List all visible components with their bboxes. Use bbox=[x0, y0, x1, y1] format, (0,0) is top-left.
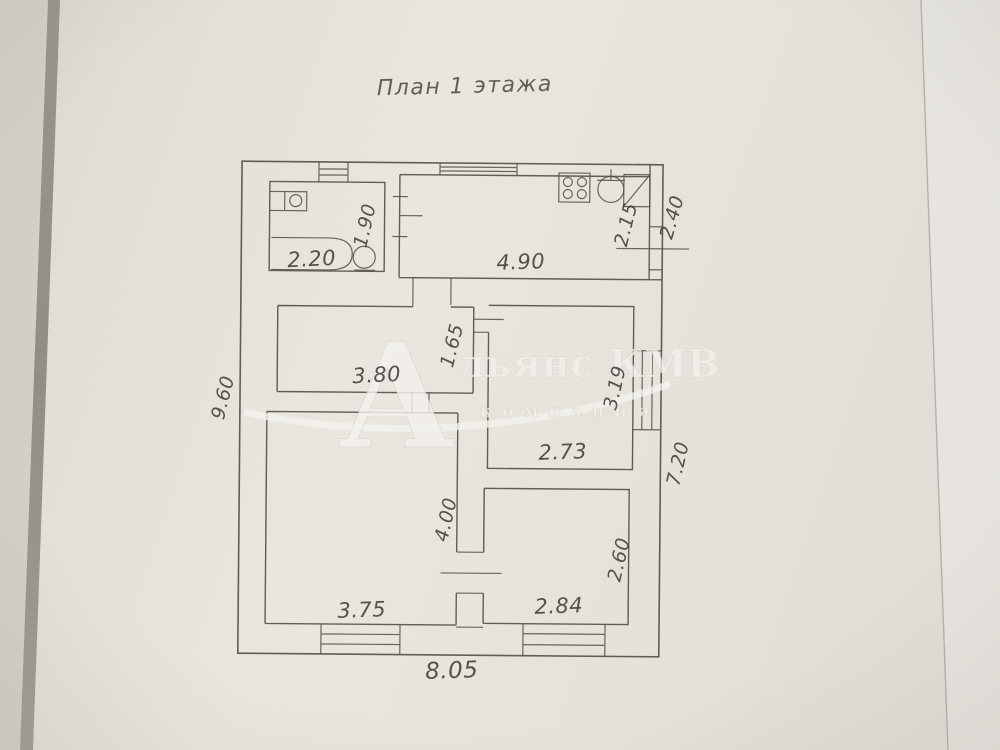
floorplan-drawing: План 1 этажа bbox=[0, 0, 1000, 750]
photo-vignette bbox=[0, 0, 1000, 750]
floorplan-photo-page: План 1 этажа bbox=[0, 0, 1000, 750]
